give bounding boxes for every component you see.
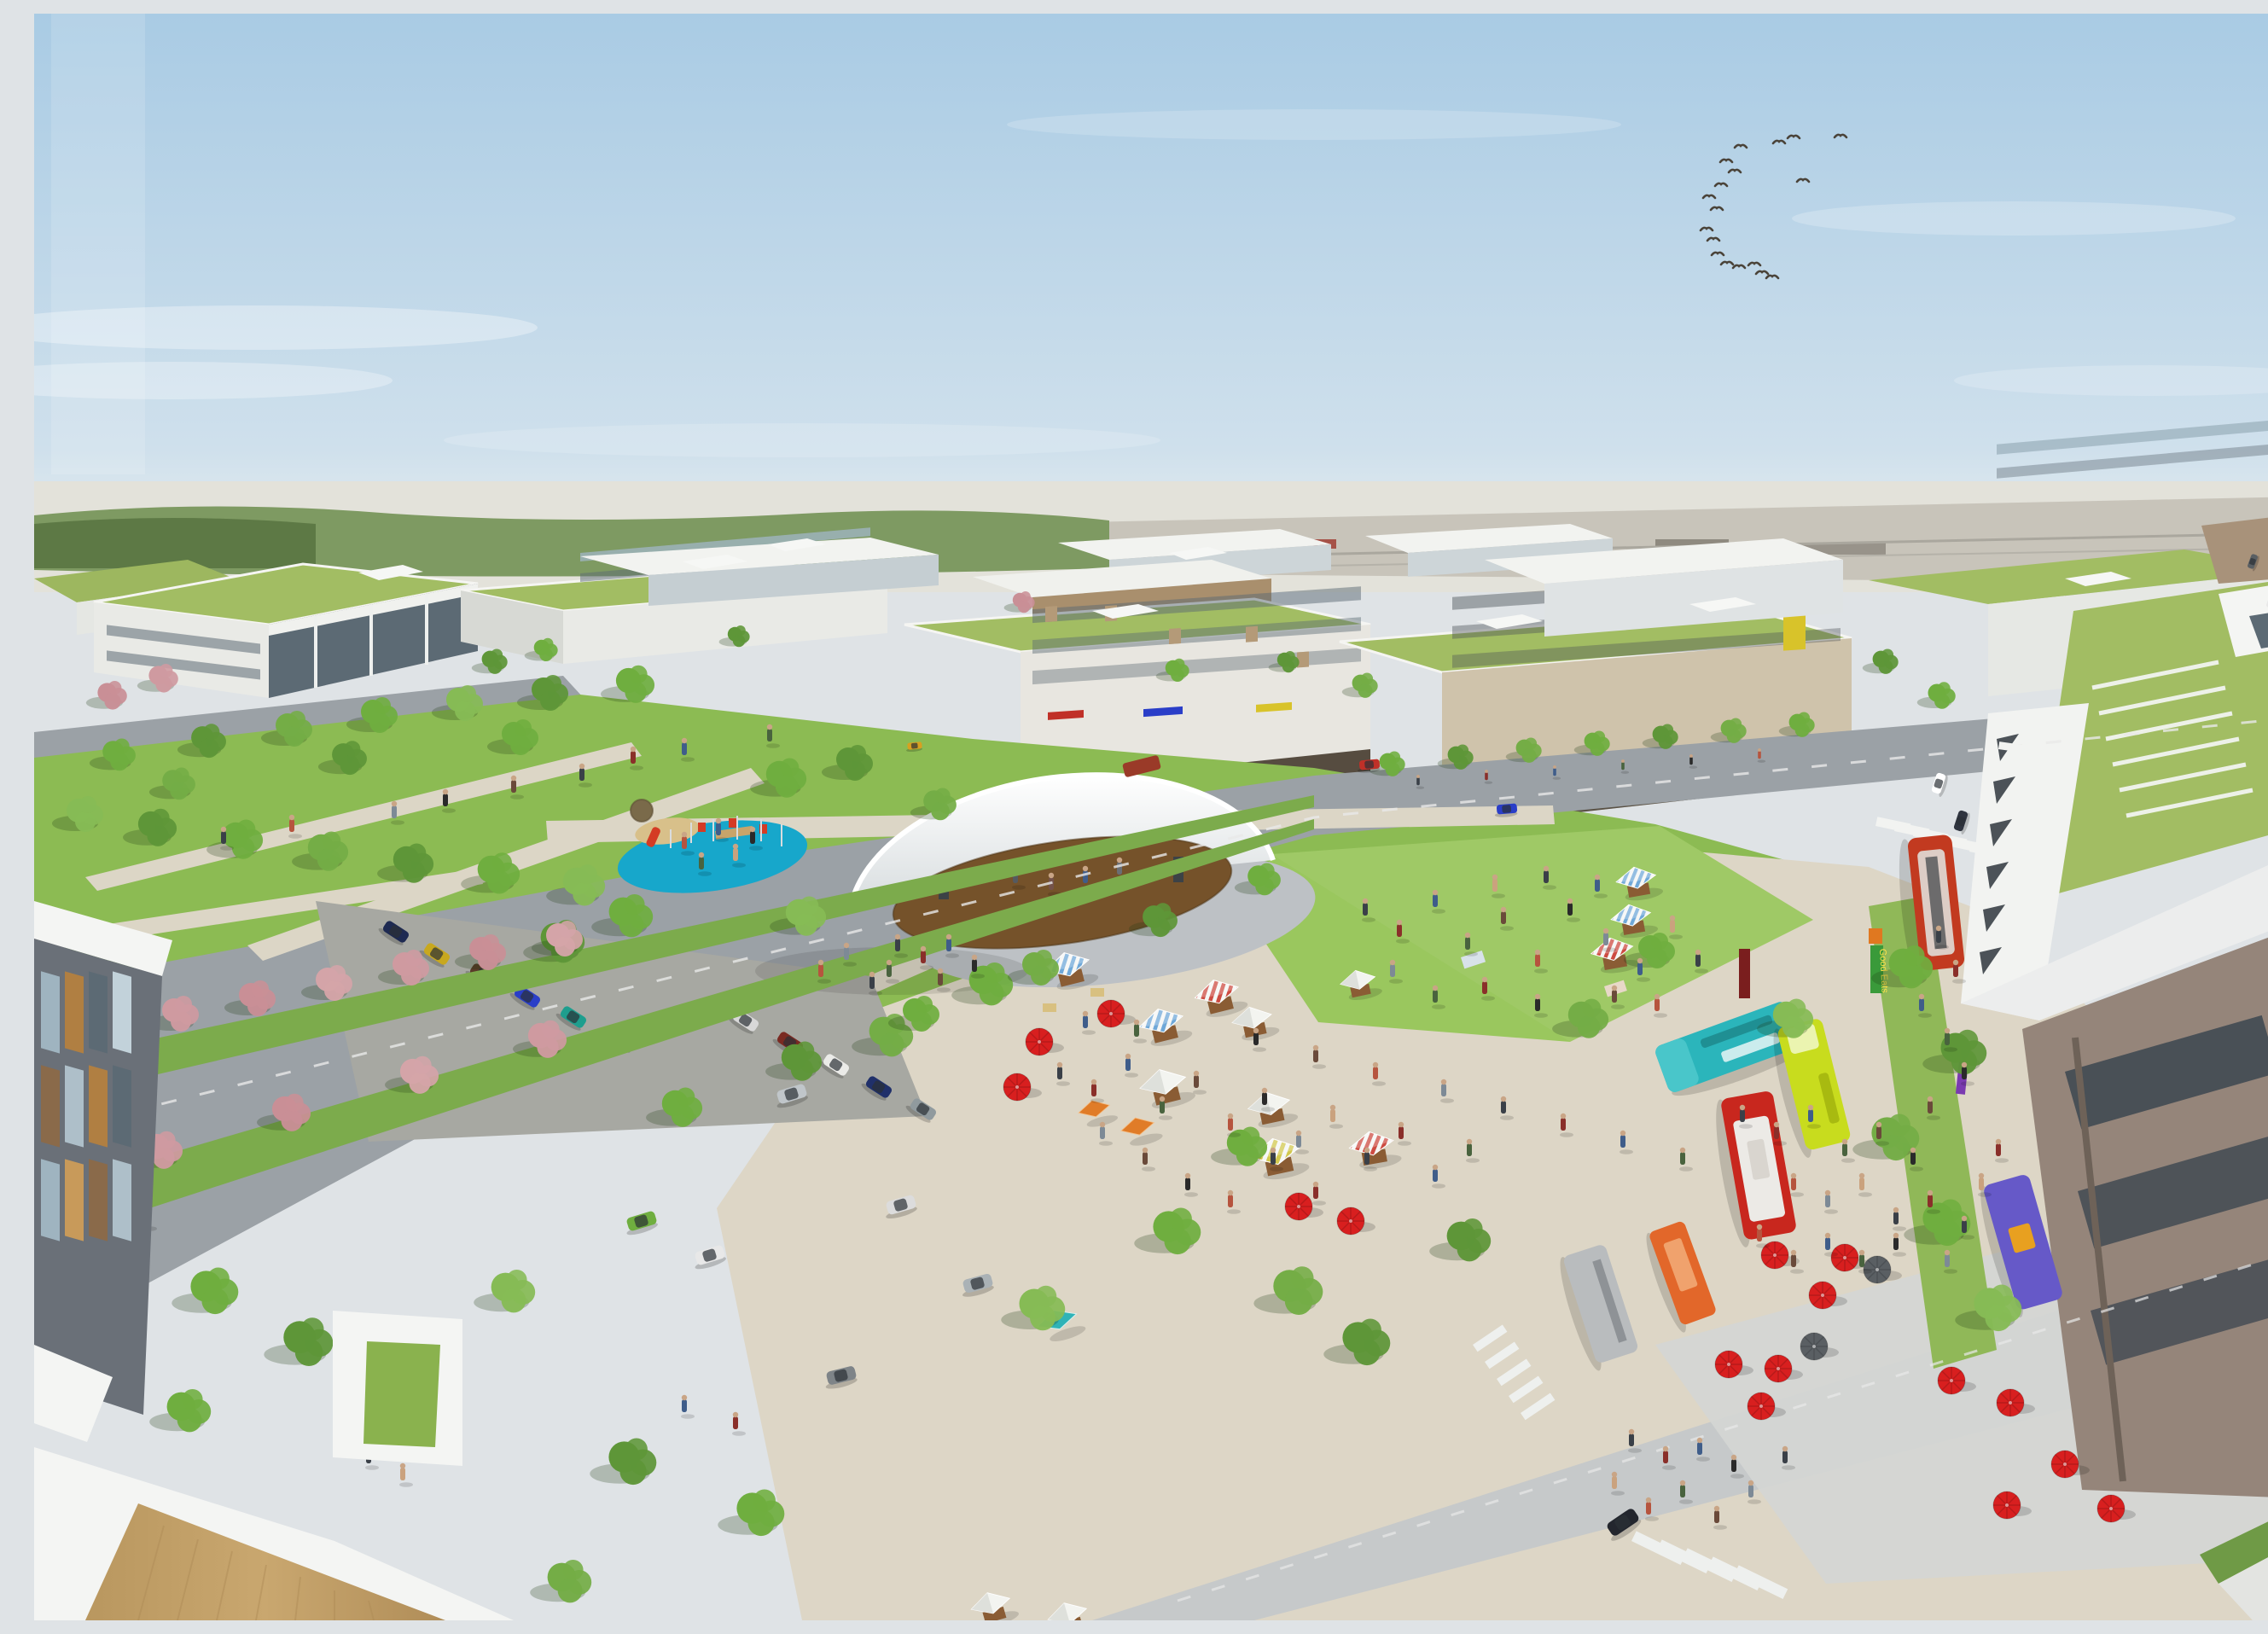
bird-icon bbox=[1711, 207, 1723, 210]
person bbox=[732, 1412, 746, 1436]
bird-icon bbox=[1748, 263, 1760, 265]
rendering-canvas: Good Eats bbox=[34, 14, 2268, 1620]
bird-icon bbox=[1835, 135, 1846, 137]
bird-icon bbox=[1715, 183, 1727, 186]
hay-bale bbox=[1090, 988, 1104, 997]
hay-bale bbox=[1043, 1003, 1056, 1012]
bird-icon bbox=[1703, 195, 1715, 198]
car bbox=[1952, 810, 1972, 835]
bird-icon bbox=[1712, 253, 1724, 255]
roof-lawn-patch bbox=[363, 1341, 440, 1447]
bird-icon bbox=[1756, 271, 1768, 274]
person bbox=[399, 1463, 413, 1487]
distant-forest bbox=[34, 518, 316, 568]
lens-flare bbox=[51, 14, 145, 474]
sky-gradient bbox=[34, 14, 2268, 560]
tree bbox=[149, 1389, 211, 1432]
orange-flag bbox=[1869, 928, 1882, 944]
rendering-stage: Aerial rendering of a new mixed-use dist… bbox=[34, 14, 2268, 1620]
bird-icon bbox=[1797, 179, 1809, 182]
bird-icon bbox=[1729, 170, 1741, 172]
market-banner bbox=[1739, 949, 1750, 998]
bird-icon bbox=[1707, 238, 1719, 241]
glass-office-corner bbox=[34, 901, 172, 1415]
bird-icon bbox=[1701, 228, 1713, 230]
bird-icon bbox=[1721, 262, 1733, 265]
flowering-tree bbox=[86, 681, 127, 710]
tree bbox=[590, 1439, 656, 1486]
tree bbox=[718, 1490, 784, 1537]
car bbox=[623, 1210, 660, 1237]
car bbox=[691, 1244, 728, 1271]
tree bbox=[264, 1317, 333, 1366]
tree bbox=[601, 666, 654, 703]
bird-icon bbox=[1766, 276, 1778, 278]
tree bbox=[472, 649, 508, 674]
bird-icon bbox=[1788, 136, 1800, 138]
person bbox=[681, 1395, 695, 1419]
tree bbox=[1863, 649, 1899, 674]
tree bbox=[474, 1270, 535, 1312]
tree bbox=[1917, 682, 1956, 709]
sky bbox=[34, 14, 2268, 560]
tree bbox=[172, 1268, 238, 1315]
bird-icon bbox=[1733, 265, 1745, 268]
flowering-tree bbox=[1004, 591, 1035, 613]
tree bbox=[530, 1560, 591, 1602]
bird-icon bbox=[1773, 141, 1785, 143]
bird-icon bbox=[1735, 145, 1747, 148]
bird-icon bbox=[1720, 160, 1732, 162]
